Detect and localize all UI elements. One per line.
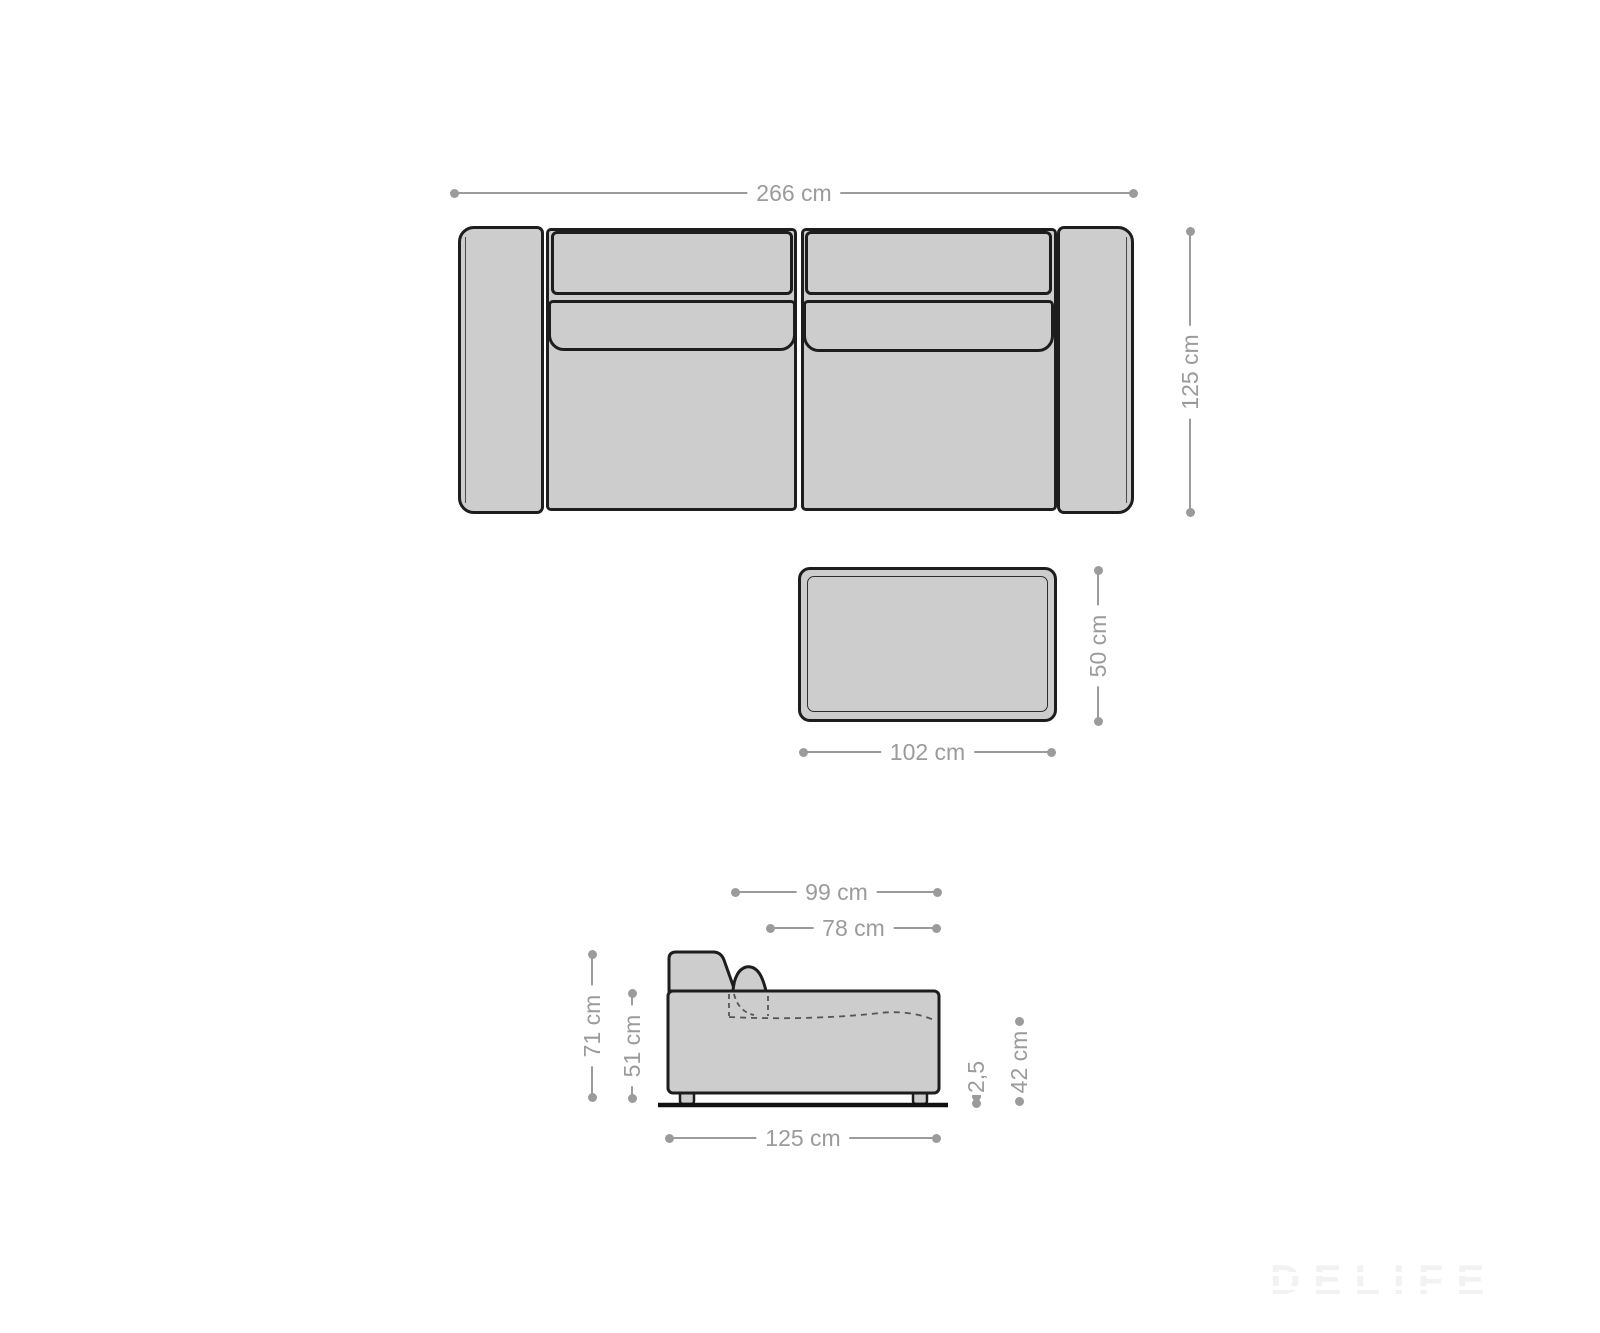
- dimension-side-length: 125 cm: [669, 1137, 937, 1139]
- sofa-top-armrest-right: [1057, 226, 1134, 514]
- dimension-side-foot-height-label: 2,5: [963, 1059, 989, 1095]
- sofa-top-back-cushion-right: [805, 231, 1052, 295]
- dimension-side-seat-height-label: 42 cm: [1006, 1028, 1032, 1095]
- sofa-side-backrest: [669, 952, 735, 991]
- sofa-top-seat-cushion-left: [548, 300, 796, 351]
- dimension-stool-width: 102 cm: [803, 751, 1052, 753]
- dimension-side-length-label: 125 cm: [756, 1125, 849, 1151]
- dimension-side-seat-depth-label: 78 cm: [813, 915, 894, 941]
- delife-watermark: DELIFE: [1270, 1256, 1580, 1306]
- dimension-side-depth-total-label: 99 cm: [796, 879, 877, 905]
- dimension-side-height-body: 51 cm: [631, 993, 633, 1099]
- sofa-top-seat-cushion-right: [803, 300, 1054, 352]
- dimension-sofa-width-label: 266 cm: [747, 180, 840, 206]
- stool-inner-seam: [807, 576, 1048, 712]
- stool-top-view: [798, 567, 1057, 722]
- sofa-top-armrest-left: [458, 226, 544, 514]
- dimension-side-foot-height: 2,5: [975, 1096, 977, 1104]
- dimension-stool-depth-label: 50 cm: [1085, 606, 1111, 687]
- delife-watermark-text: DELIFE: [1270, 1256, 1580, 1304]
- dimension-side-depth-total: 99 cm: [735, 891, 938, 893]
- dimension-sofa-depth: 125 cm: [1189, 231, 1191, 513]
- dimension-side-seat-height: 42 cm: [1018, 1021, 1020, 1102]
- dimension-side-seat-depth: 78 cm: [770, 927, 937, 929]
- dimension-side-height-body-label: 51 cm: [619, 1006, 645, 1087]
- sofa-side-drawing: [640, 940, 960, 1120]
- dimension-sofa-width: 266 cm: [454, 192, 1134, 194]
- sofa-top-back-cushion-left: [551, 231, 793, 295]
- sofa-side-body: [668, 991, 939, 1093]
- dimension-sofa-depth-label: 125 cm: [1177, 325, 1203, 418]
- dimension-side-height-total-label: 71 cm: [579, 986, 605, 1067]
- dimension-stool-depth: 50 cm: [1097, 570, 1099, 722]
- diagram-canvas: 266 cm 125 cm 50 cm 102 cm 99 cm 78 cm 7…: [0, 0, 1600, 1333]
- dimension-side-height-total: 71 cm: [591, 954, 593, 1098]
- dimension-stool-width-label: 102 cm: [881, 739, 974, 765]
- sofa-side-pillow: [733, 967, 766, 991]
